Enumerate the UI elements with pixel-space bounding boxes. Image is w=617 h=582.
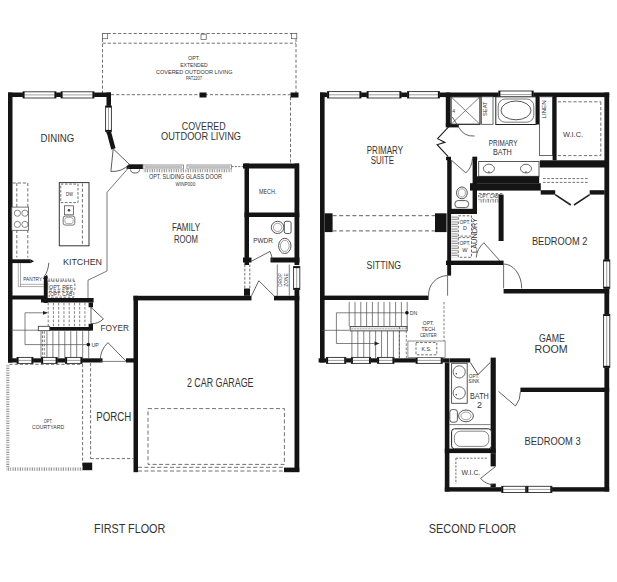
svg-text:DINING: DINING [41,133,75,144]
svg-text:SINK: SINK [469,378,480,384]
svg-text:OPT. SLIDING GLASS DOOR: OPT. SLIDING GLASS DOOR [149,173,222,180]
svg-text:2 CAR GARAGE: 2 CAR GARAGE [187,376,254,390]
svg-text:LAUNDRY: LAUNDRY [470,217,479,253]
svg-text:PWDR: PWDR [253,236,273,245]
svg-text:FIRST FLOOR: FIRST FLOOR [94,521,165,536]
svg-text:ZONE: ZONE [283,273,289,287]
svg-text:COURTYARD: COURTYARD [32,424,65,430]
svg-text:SITTING: SITTING [367,260,402,271]
svg-text:D: D [463,225,467,231]
svg-text:4: 4 [452,108,455,114]
svg-text:SUITE: SUITE [371,155,395,166]
svg-text:LINEN: LINEN [541,100,547,118]
svg-text:FAMILY: FAMILY [172,222,200,233]
svg-text:K.S.: K.S. [421,346,431,352]
svg-text:WINP000: WINP000 [176,181,196,187]
svg-text:DW: DW [66,191,73,197]
svg-text:ROOM: ROOM [174,234,198,245]
svg-text:OPT.: OPT. [44,418,53,424]
svg-text:2: 2 [477,400,482,410]
svg-text:BEDROOM 3: BEDROOM 3 [525,435,581,447]
svg-text:OPT. CAB: OPT. CAB [50,291,72,297]
svg-text:PANTRY: PANTRY [23,276,42,282]
svg-text:FOYER: FOYER [100,322,129,333]
svg-text:EXTENDED: EXTENDED [180,61,208,68]
svg-text:W.I.C.: W.I.C. [462,468,481,477]
svg-text:PAT2207: PAT2207 [186,76,202,81]
svg-text:COVERED OUTDOOR LIVING: COVERED OUTDOOR LIVING [156,68,233,75]
svg-text:W: W [462,247,468,253]
svg-text:PORCH: PORCH [96,410,131,424]
svg-text:CENTER: CENTER [420,332,437,338]
svg-text:DN: DN [410,310,418,316]
svg-text:GAME: GAME [539,332,565,344]
svg-text:OPT. REF.: OPT. REF. [49,284,74,290]
svg-text:SEAT: SEAT [482,101,488,116]
svg-text:OPT. CABS: OPT. CABS [480,193,501,199]
svg-text:BATH: BATH [493,147,512,157]
svg-text:OPT.: OPT. [188,54,200,61]
svg-text:OUTDOOR LIVING: OUTDOOR LIVING [161,131,241,142]
svg-text:DROP: DROP [277,273,283,287]
svg-text:W.I.C.: W.I.C. [563,130,583,139]
svg-text:BEDROOM 2: BEDROOM 2 [532,235,588,247]
svg-text:ROOM: ROOM [535,343,568,355]
svg-text:UP: UP [91,341,99,348]
svg-text:MECH.: MECH. [259,187,276,196]
svg-text:SECOND FLOOR: SECOND FLOOR [429,521,516,536]
svg-text:KITCHEN: KITCHEN [63,256,102,267]
